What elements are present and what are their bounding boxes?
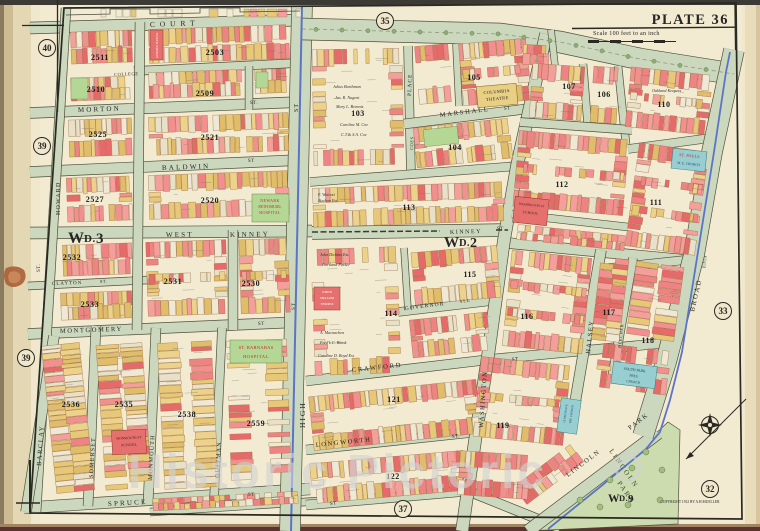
svg-text:C.T.& S.A. Coe: C.T.& S.A. Coe xyxy=(341,132,367,137)
svg-text:MORTON: MORTON xyxy=(78,105,121,114)
svg-text:CLAYTON: CLAYTON xyxy=(52,281,82,287)
svg-text:2521: 2521 xyxy=(201,133,219,142)
svg-text:117: 117 xyxy=(602,308,615,317)
svg-text:32: 32 xyxy=(706,484,716,494)
svg-text:ST: ST xyxy=(292,302,297,310)
svg-text:2538: 2538 xyxy=(178,410,196,419)
svg-text:111: 111 xyxy=(650,198,663,207)
svg-text:COLLEGE: COLLEGE xyxy=(114,71,139,77)
svg-text:121: 121 xyxy=(387,395,401,404)
svg-text:NEWARK: NEWARK xyxy=(260,198,280,203)
svg-text:39: 39 xyxy=(22,353,32,363)
svg-text:2: 2 xyxy=(470,236,477,251)
svg-text:2527: 2527 xyxy=(86,195,104,204)
svg-text:John Dickins Est.: John Dickins Est. xyxy=(320,252,349,257)
svg-text:2535: 2535 xyxy=(115,400,133,409)
svg-text:104: 104 xyxy=(448,143,462,152)
svg-text:106: 106 xyxy=(597,90,611,99)
svg-text:116: 116 xyxy=(520,312,533,321)
svg-text:112: 112 xyxy=(555,180,568,189)
svg-text:2536: 2536 xyxy=(62,400,80,409)
svg-text:2511: 2511 xyxy=(91,53,109,62)
svg-text:ST: ST xyxy=(248,159,255,164)
svg-text:PLACE: PLACE xyxy=(407,73,414,96)
svg-text:2559: 2559 xyxy=(247,419,265,428)
svg-text:33: 33 xyxy=(719,306,729,316)
svg-text:Gortland Parker: Gortland Parker xyxy=(322,262,350,267)
svg-text:ST: ST xyxy=(258,322,265,327)
svg-text:SHALOM: SHALOM xyxy=(320,296,334,300)
svg-text:37: 37 xyxy=(399,504,409,514)
svg-text:105: 105 xyxy=(467,73,481,82)
svg-text:KINNEY: KINNEY xyxy=(230,230,270,239)
svg-text:Caroline M. Coe: Caroline M. Coe xyxy=(340,122,368,127)
svg-text:2533: 2533 xyxy=(81,300,99,309)
svg-text:W: W xyxy=(68,230,85,247)
svg-text:Julius Barthman: Julius Barthman xyxy=(333,84,361,89)
svg-text:TEMPLE: TEMPLE xyxy=(320,302,333,306)
svg-text:HIGH: HIGH xyxy=(298,401,307,428)
svg-text:Oakland Keepers: Oakland Keepers xyxy=(652,88,682,93)
svg-text:103: 103 xyxy=(351,109,365,118)
svg-text:COPYRIGHT 1912 BY A.H.MUELLER: COPYRIGHT 1912 BY A.H.MUELLER xyxy=(661,500,721,504)
svg-text:113: 113 xyxy=(402,203,415,212)
svg-text:2503: 2503 xyxy=(206,48,224,57)
svg-text:ST: ST xyxy=(497,227,504,232)
svg-text:BETH-ISRAEL: BETH-ISRAEL xyxy=(258,205,281,209)
svg-text:ST: ST xyxy=(504,106,511,112)
svg-text:D.: D. xyxy=(459,238,470,249)
svg-text:D.: D. xyxy=(84,233,96,245)
svg-text:2530: 2530 xyxy=(242,279,260,288)
svg-text:ST: ST xyxy=(294,103,300,112)
svg-text:COES: COES xyxy=(409,136,414,150)
svg-text:39: 39 xyxy=(38,141,48,151)
svg-text:ST.: ST. xyxy=(37,264,42,272)
svg-text:HOSPITAL: HOSPITAL xyxy=(243,354,269,359)
svg-text:2509: 2509 xyxy=(196,89,214,98)
svg-text:ST: ST xyxy=(512,357,519,363)
svg-text:115: 115 xyxy=(463,270,476,279)
svg-text:9: 9 xyxy=(628,493,634,505)
svg-text:GERMAN SCHOOL: GERMAN SCHOOL xyxy=(155,32,159,58)
svg-text:W: W xyxy=(444,235,460,251)
svg-text:F. Wolcott: F. Wolcott xyxy=(317,192,336,197)
svg-text:C O U R T: C O U R T xyxy=(150,18,197,29)
svg-text:WEST: WEST xyxy=(166,231,194,239)
svg-text:114: 114 xyxy=(384,309,397,318)
svg-text:Fred'k C. Blank: Fred'k C. Blank xyxy=(319,340,347,345)
svg-text:2531: 2531 xyxy=(164,277,182,286)
svg-text:Historic Pictoric: Historic Pictoric xyxy=(128,446,547,499)
svg-text:3: 3 xyxy=(96,231,104,247)
svg-text:ST. BARNABAS: ST. BARNABAS xyxy=(239,345,274,350)
svg-text:Scale 100 feet to an inch: Scale 100 feet to an inch xyxy=(593,30,660,37)
svg-text:D.: D. xyxy=(619,493,628,503)
svg-text:PLATE 36: PLATE 36 xyxy=(652,12,729,28)
svg-text:2510: 2510 xyxy=(87,85,105,94)
svg-text:Jas. R. Nugent: Jas. R. Nugent xyxy=(335,95,360,100)
svg-text:OHEB: OHEB xyxy=(322,290,333,294)
svg-text:HOWARD: HOWARD xyxy=(56,181,62,215)
svg-text:ST.: ST. xyxy=(452,434,461,440)
svg-text:2520: 2520 xyxy=(201,196,219,205)
svg-text:Buchan Est.: Buchan Est. xyxy=(318,198,338,203)
svg-text:Mary L. Brennis: Mary L. Brennis xyxy=(335,104,364,109)
svg-text:107: 107 xyxy=(562,82,576,91)
svg-text:40: 40 xyxy=(43,43,53,53)
svg-text:118: 118 xyxy=(641,336,654,345)
svg-text:BALDWIN: BALDWIN xyxy=(162,162,211,172)
svg-text:ST.: ST. xyxy=(250,101,258,106)
svg-text:Caroline D. Boyd Est: Caroline D. Boyd Est xyxy=(318,353,355,358)
svg-text:110: 110 xyxy=(657,100,670,109)
svg-text:35: 35 xyxy=(381,16,391,26)
svg-text:2532: 2532 xyxy=(63,253,81,262)
svg-text:ST: ST xyxy=(330,501,337,507)
svg-text:HOSPITAL: HOSPITAL xyxy=(259,210,281,215)
svg-text:2525: 2525 xyxy=(89,130,107,139)
svg-text:119: 119 xyxy=(496,421,509,430)
svg-text:ST.: ST. xyxy=(100,279,107,284)
svg-text:A. Macnachen: A. Macnachen xyxy=(319,330,344,335)
